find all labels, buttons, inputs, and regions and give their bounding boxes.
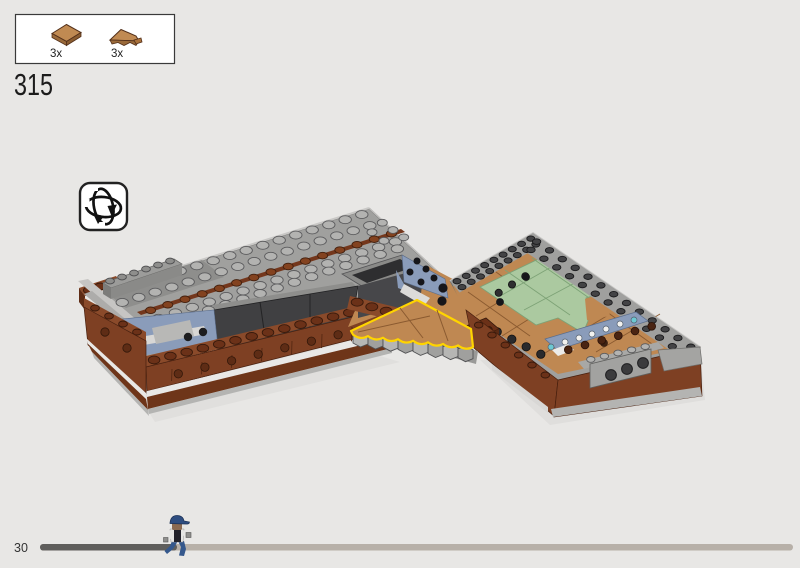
svg-text:3x: 3x [111, 48, 123, 60]
svg-text:30: 30 [14, 541, 28, 555]
svg-text:3x: 3x [50, 48, 62, 60]
svg-text:315: 315 [14, 67, 53, 102]
